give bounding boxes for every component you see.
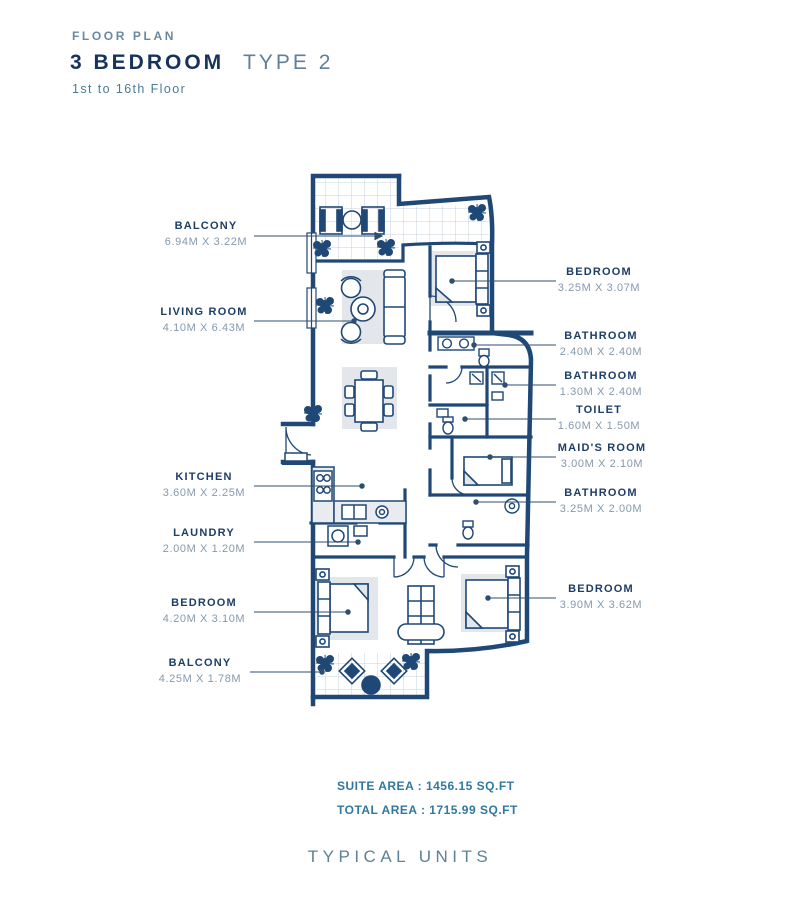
room-label-balcony-bottom: BALCONY 4.25M X 1.78M [159,657,241,686]
room-label-living-room: LIVING ROOM 4.10M X 6.43M [160,306,247,335]
maids-room-bed [464,457,512,485]
wardrobe [398,586,444,644]
floor-plan-eyebrow: FLOOR PLAN [72,29,176,43]
room-label-kitchen: KITCHEN 3.60M X 2.25M [163,471,245,500]
suite-area: SUITE AREA : 1456.15 SQ.FT [337,779,518,793]
laundry-furniture [328,526,367,546]
room-label-balcony-top: BALCONY 6.94M X 3.22M [165,220,247,249]
room-label-bedroom-topright: BEDROOM 3.25M X 3.07M [558,266,640,295]
footer-caption: TYPICAL UNITS [0,847,800,867]
title-type: TYPE 2 [243,51,333,74]
room-label-bedroom-bottomright: BEDROOM 3.90M X 3.62M [560,583,642,612]
room-label-bathroom-3: BATHROOM 3.25M X 2.00M [560,487,642,516]
floor-plan-page: FLOOR PLAN 3 BEDROOM TYPE 2 1st to 16th … [0,0,800,903]
room-label-bathroom-1: BATHROOM 2.40M X 2.40M [560,330,642,359]
floor-plan-drawing [240,165,560,710]
page-title: 3 BEDROOM TYPE 2 [70,51,333,75]
title-bedroom-count: 3 BEDROOM [70,51,224,74]
total-area: TOTAL AREA : 1715.99 SQ.FT [337,803,518,817]
room-label-laundry: LAUNDRY 2.00M X 1.20M [163,527,245,556]
floor-range: 1st to 16th Floor [72,82,186,96]
room-label-bathroom-2: BATHROOM 1.30M X 2.40M [560,370,642,399]
room-label-toilet: TOILET 1.60M X 1.50M [558,404,640,433]
room-label-maids-room: MAID'S ROOM 3.00M X 2.10M [558,442,647,471]
area-summary: SUITE AREA : 1456.15 SQ.FT TOTAL AREA : … [337,779,518,827]
room-label-bedroom-bottomleft: BEDROOM 4.20M X 3.10M [163,597,245,626]
